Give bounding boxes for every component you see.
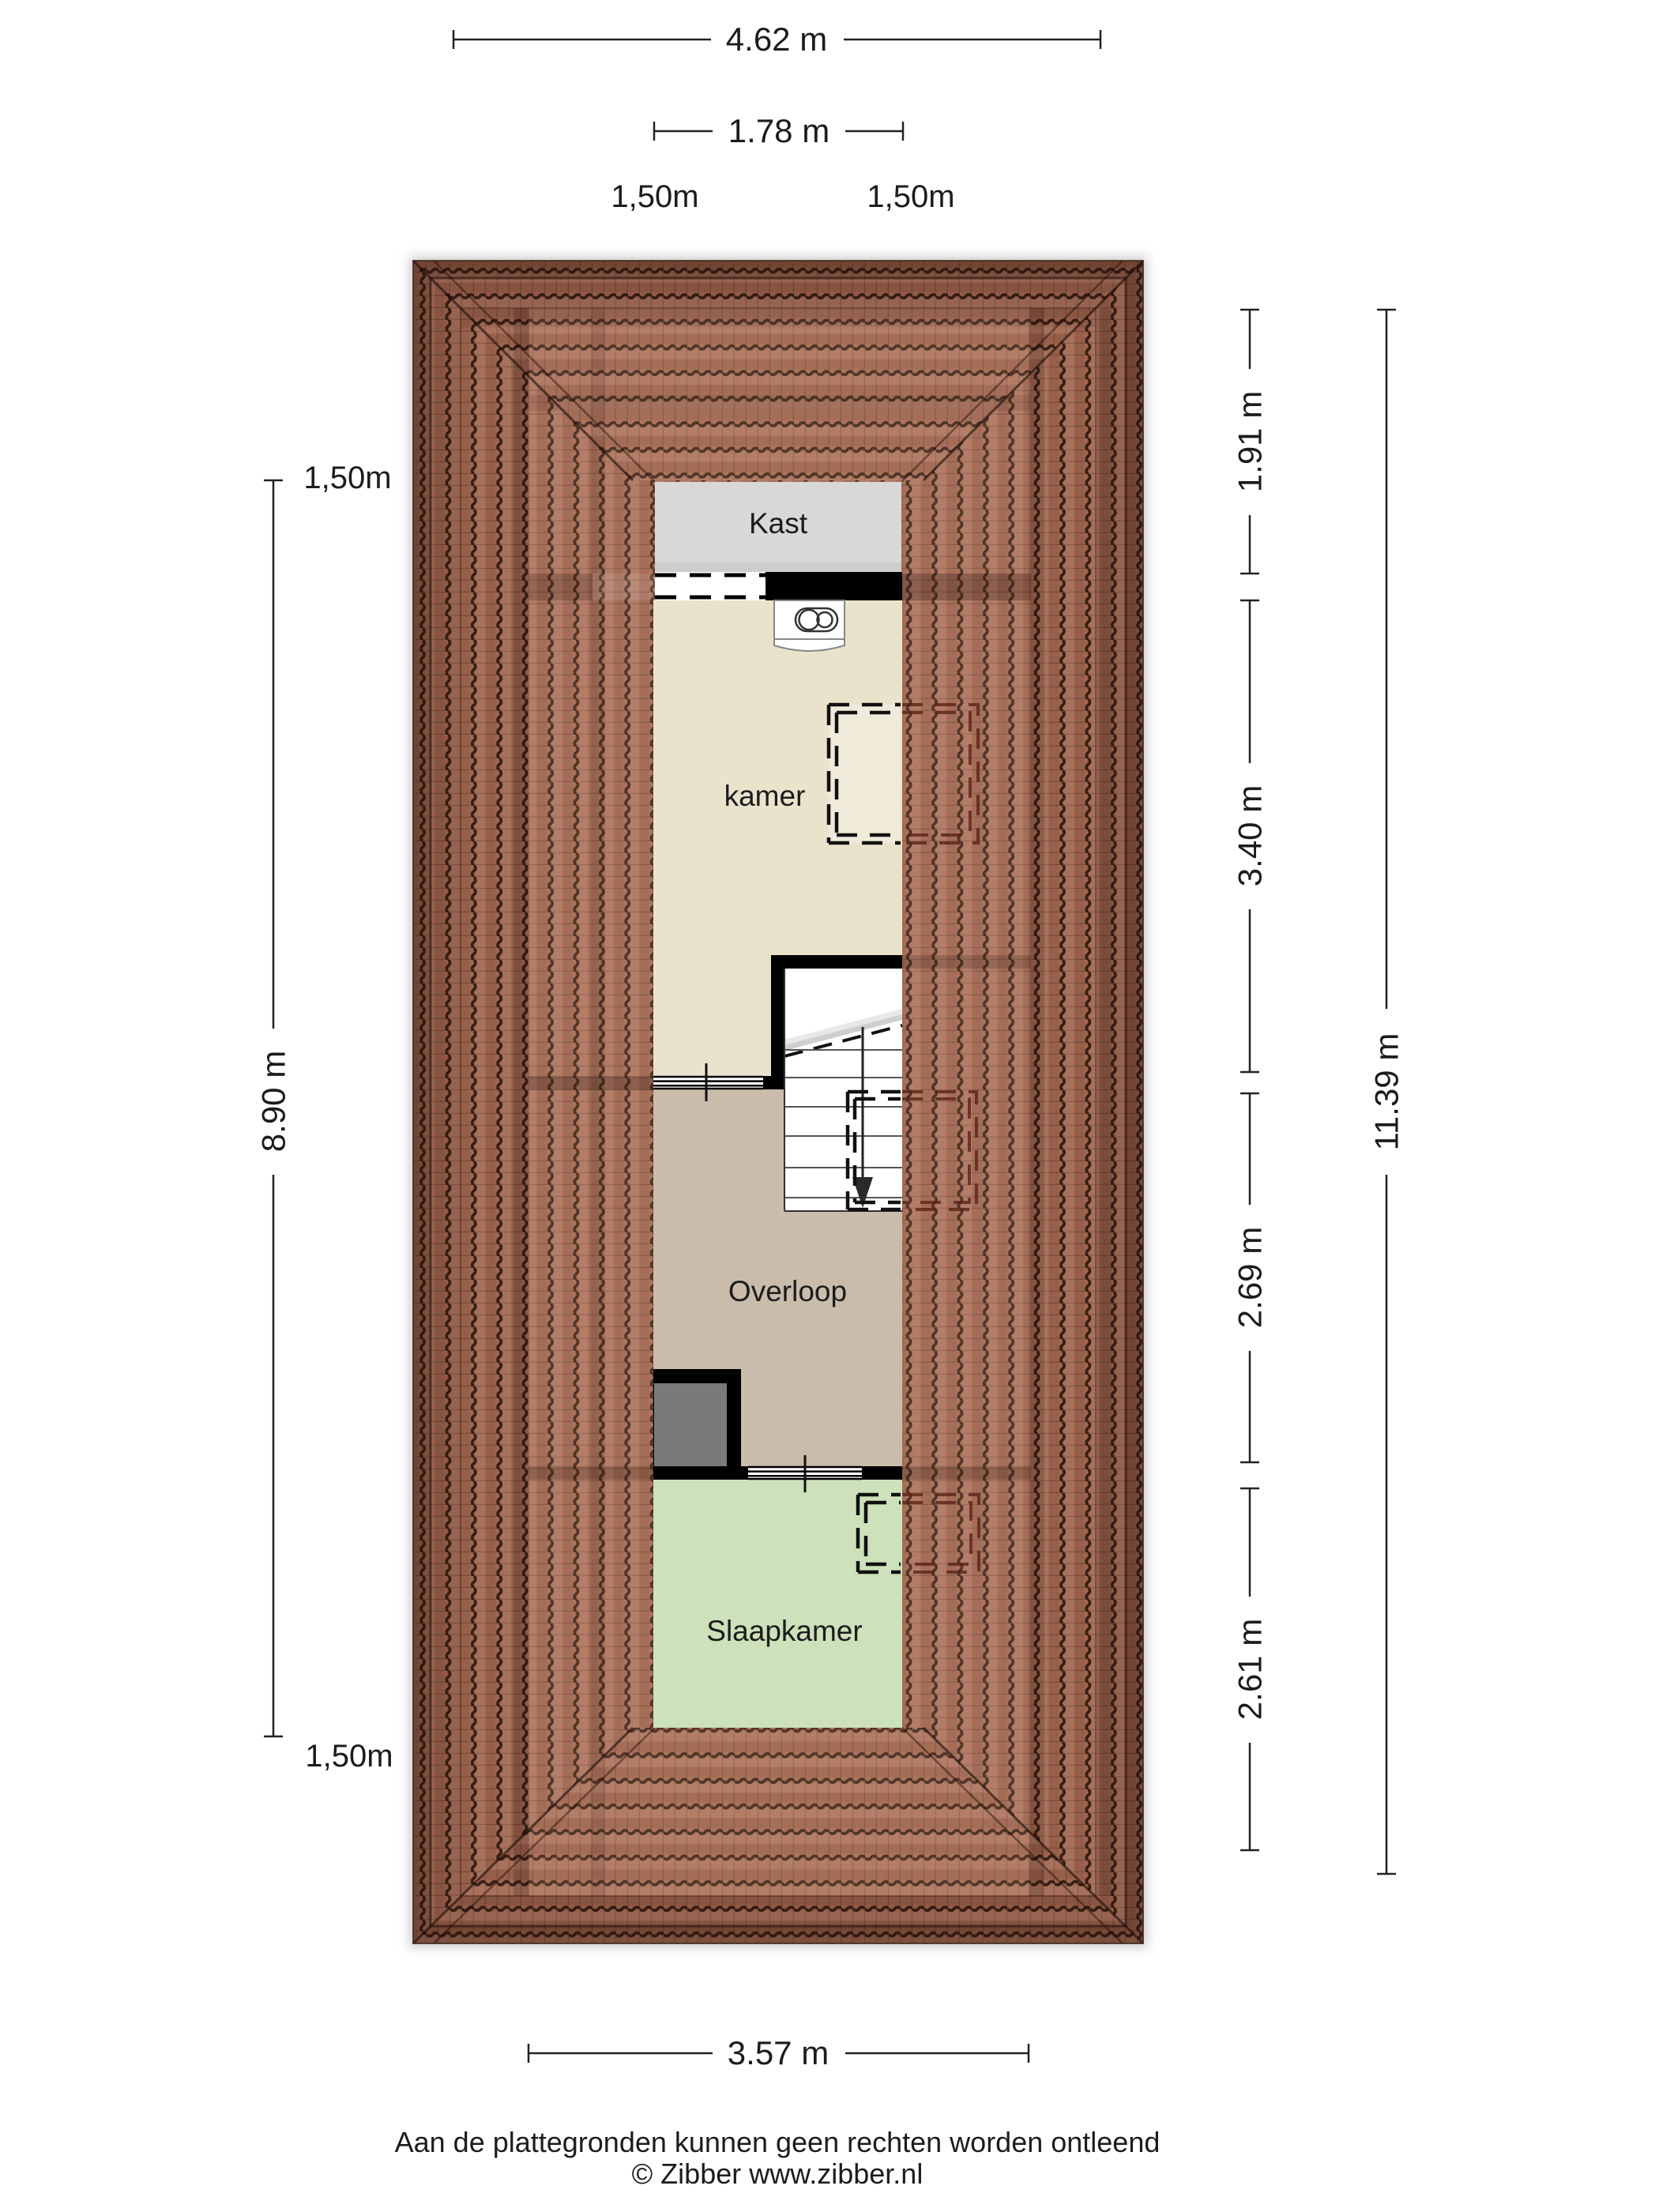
svg-text:1,50m: 1,50m	[305, 1739, 393, 1774]
svg-text:1,50m: 1,50m	[303, 461, 391, 495]
svg-text:3.40 m: 3.40 m	[1232, 785, 1269, 886]
svg-text:Slaapkamer: Slaapkamer	[706, 1615, 862, 1647]
svg-text:4.62 m: 4.62 m	[726, 21, 827, 58]
svg-text:2.61 m: 2.61 m	[1232, 1619, 1269, 1720]
svg-text:8.90 m: 8.90 m	[255, 1051, 292, 1152]
svg-text:© Zibber www.zibber.nl: © Zibber www.zibber.nl	[632, 2157, 924, 2190]
svg-text:kamer: kamer	[724, 780, 806, 812]
svg-text:1,50m: 1,50m	[611, 179, 698, 214]
svg-text:1.78 m: 1.78 m	[728, 112, 829, 149]
svg-text:11.39 m: 11.39 m	[1368, 1033, 1405, 1151]
svg-text:Aan de plattegronden kunnen ge: Aan de plattegronden kunnen geen rechten…	[395, 2126, 1161, 2158]
svg-text:1,50m: 1,50m	[867, 179, 954, 214]
svg-text:2.69 m: 2.69 m	[1232, 1227, 1269, 1328]
svg-text:Kast: Kast	[749, 507, 808, 540]
svg-text:3.57 m: 3.57 m	[728, 2034, 829, 2071]
svg-text:Overloop: Overloop	[728, 1275, 847, 1307]
svg-text:1.91 m: 1.91 m	[1232, 391, 1269, 492]
